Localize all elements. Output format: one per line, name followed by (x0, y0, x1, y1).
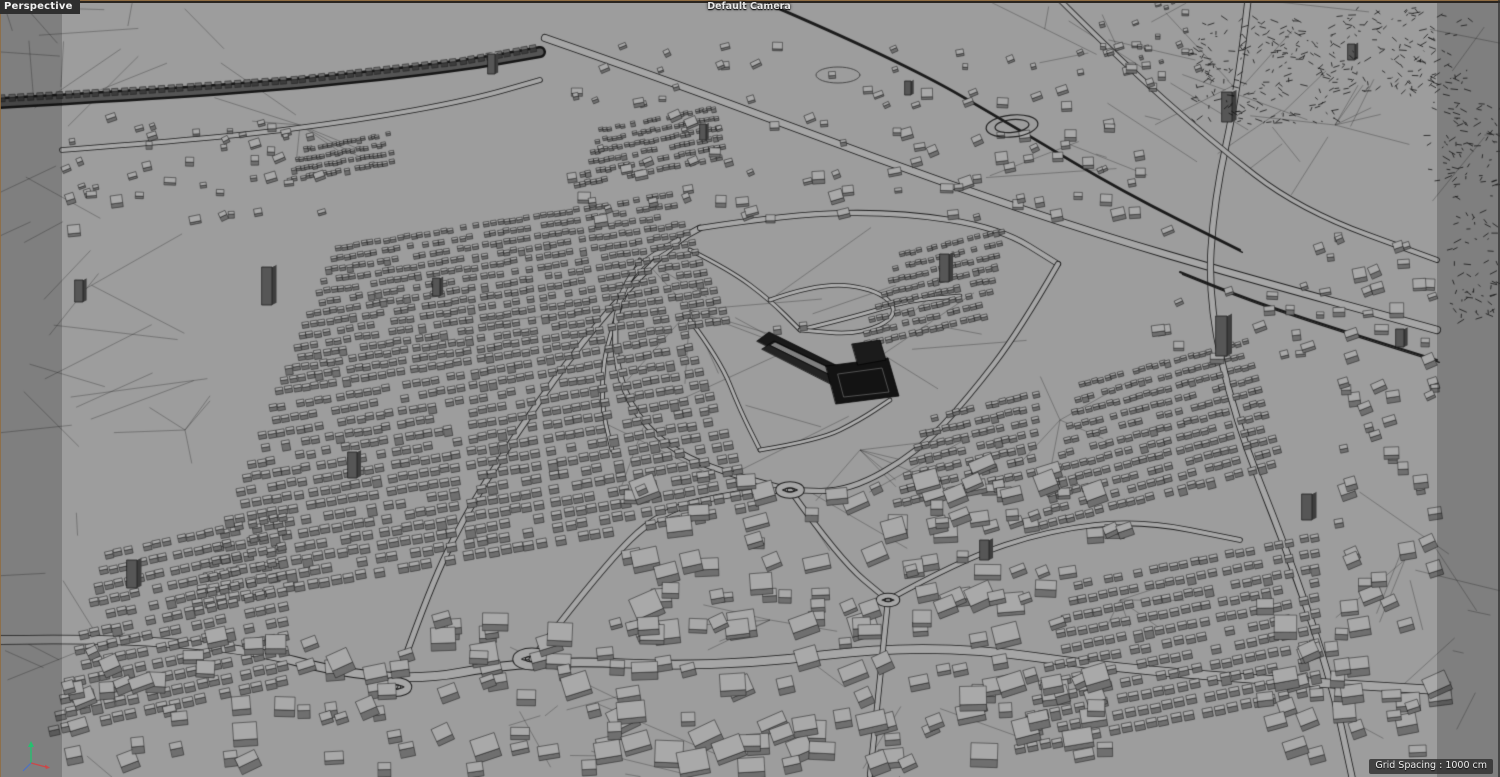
viewport-3d[interactable]: Perspective Default Camera Grid Spacing … (0, 0, 1500, 777)
wireframe-city-model-canvas[interactable] (0, 0, 1500, 777)
view-label[interactable]: Perspective (0, 0, 80, 14)
viewport-active-border (0, 0, 1, 777)
grid-spacing-label: Grid Spacing : 1000 cm (1369, 759, 1493, 774)
camera-label[interactable]: Default Camera (684, 1, 814, 13)
